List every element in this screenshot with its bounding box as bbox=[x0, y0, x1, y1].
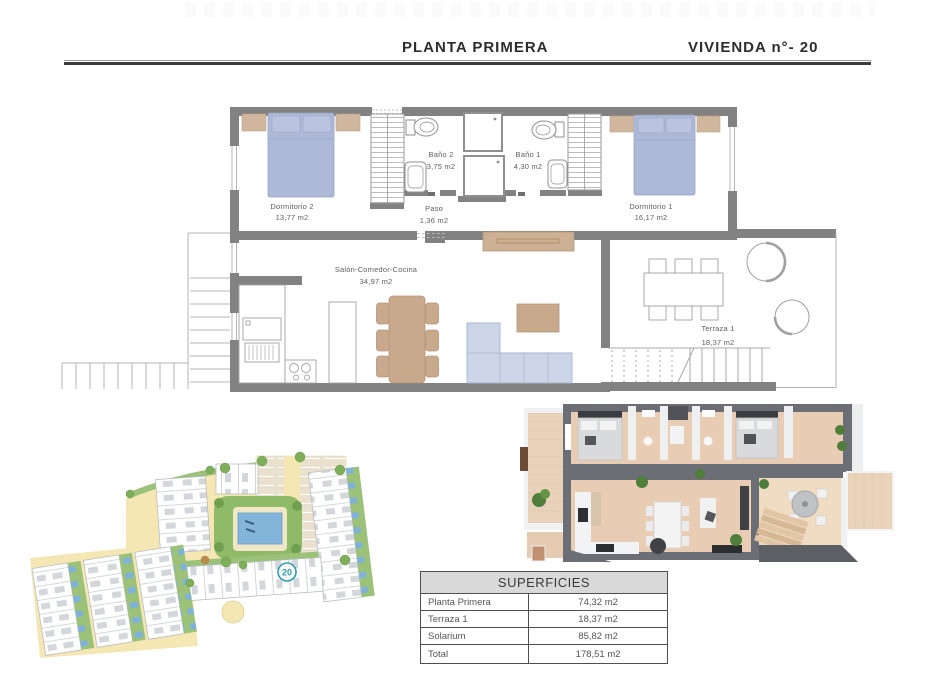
room-area: 16,17 m2 bbox=[635, 213, 668, 222]
table-row: Total 178,51 m2 bbox=[421, 645, 667, 663]
row-label: Planta Primera bbox=[421, 594, 529, 610]
room-label: Dormitorio 1 bbox=[629, 202, 672, 211]
room-area: 3,75 m2 bbox=[427, 162, 456, 171]
site-plan: 20 bbox=[30, 452, 375, 658]
door-icon bbox=[520, 447, 528, 471]
room-label: Baño 1 bbox=[516, 150, 541, 159]
row-label: Solarium bbox=[421, 628, 529, 644]
terrace-dining-icon bbox=[644, 259, 723, 320]
render-neighbor-left bbox=[520, 408, 570, 561]
room-label: Terraza 1 bbox=[701, 324, 734, 333]
plant-icon bbox=[835, 425, 845, 435]
row-value: 178,51 m2 bbox=[529, 645, 667, 663]
render-bedroom-band bbox=[563, 404, 863, 472]
coffee-table-icon bbox=[517, 304, 559, 332]
round-chair-icon bbox=[747, 243, 809, 334]
table-row: Terraza 1 18,37 m2 bbox=[421, 611, 667, 628]
brochure-page: PLANTA PRIMERA VIVIENDA n°- 20 bbox=[0, 0, 935, 682]
exterior-stairs bbox=[62, 233, 230, 389]
room-label: Dormitorio 2 bbox=[270, 202, 313, 211]
room-area: 34,97 m2 bbox=[360, 277, 393, 286]
room-area: 13,77 m2 bbox=[276, 213, 309, 222]
row-value: 18,37 m2 bbox=[529, 611, 667, 627]
room-area: 18,37 m2 bbox=[702, 338, 735, 347]
plant-icon bbox=[759, 479, 769, 489]
site-culdesac bbox=[222, 601, 244, 623]
floor-plan: Dormitorio 2 13,77 m2 Baño 2 3,75 m2 Bañ… bbox=[62, 107, 836, 392]
terrace-stairs bbox=[608, 348, 770, 382]
room-label: Baño 2 bbox=[429, 150, 454, 159]
sink-icon bbox=[405, 162, 426, 192]
render-3d bbox=[520, 404, 893, 562]
pool-icon bbox=[238, 513, 282, 544]
plant-icon bbox=[636, 476, 648, 488]
room-label: Salón-Comedor-Cocina bbox=[335, 265, 418, 274]
kitchen-icon bbox=[239, 285, 356, 383]
row-value: 85,82 m2 bbox=[529, 628, 667, 644]
surfaces-table-title: SUPERFICIES bbox=[421, 572, 667, 594]
toilet-icon bbox=[406, 118, 438, 136]
dining-table-icon bbox=[377, 296, 439, 383]
site-pool-island bbox=[214, 496, 302, 560]
bed-icon bbox=[268, 113, 334, 197]
badge-number: 20 bbox=[282, 568, 292, 578]
row-label: Terraza 1 bbox=[421, 611, 529, 627]
wardrobe-icon bbox=[371, 114, 404, 203]
room-label: Paso bbox=[425, 204, 443, 213]
row-value: 74,32 m2 bbox=[529, 594, 667, 610]
render-terrace bbox=[754, 466, 893, 562]
bed-icon bbox=[634, 115, 695, 195]
wardrobe-icon bbox=[568, 114, 601, 190]
site-building bbox=[155, 476, 210, 553]
unit-20-badge: 20 bbox=[278, 563, 296, 581]
render-living-band bbox=[563, 469, 759, 562]
table-row: Planta Primera 74,32 m2 bbox=[421, 594, 667, 611]
room-area: 4,30 m2 bbox=[514, 162, 543, 171]
toilet-icon bbox=[532, 121, 564, 139]
surfaces-table: SUPERFICIES Planta Primera 74,32 m2 Terr… bbox=[420, 571, 668, 664]
row-label: Total bbox=[421, 645, 529, 663]
tv-sideboard-icon bbox=[483, 232, 574, 251]
shower-icon bbox=[464, 113, 504, 196]
render-bed bbox=[578, 411, 622, 460]
render-bed bbox=[736, 411, 778, 458]
sink-icon bbox=[548, 160, 567, 188]
room-area: 1,36 m2 bbox=[420, 216, 449, 225]
table-row: Solarium 85,82 m2 bbox=[421, 628, 667, 645]
